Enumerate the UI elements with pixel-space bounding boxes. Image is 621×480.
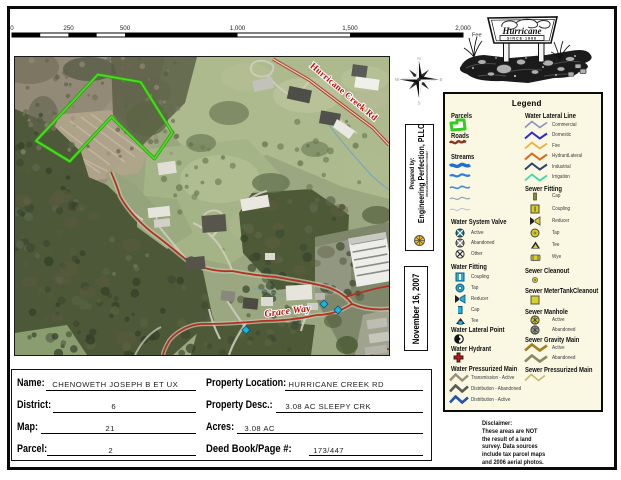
svg-text:Hurricane: Hurricane xyxy=(501,26,541,36)
svg-text:SINCE 1888: SINCE 1888 xyxy=(507,37,537,41)
svg-text:N: N xyxy=(417,56,420,61)
svg-text:E: E xyxy=(439,77,442,82)
svg-text:S: S xyxy=(417,101,420,106)
svg-text:1,000: 1,000 xyxy=(230,25,246,32)
svg-text:1,500: 1,500 xyxy=(342,25,358,32)
svg-text:0: 0 xyxy=(10,25,14,32)
svg-text:W: W xyxy=(395,77,400,82)
svg-text:250: 250 xyxy=(63,25,74,32)
svg-text:500: 500 xyxy=(120,25,131,32)
